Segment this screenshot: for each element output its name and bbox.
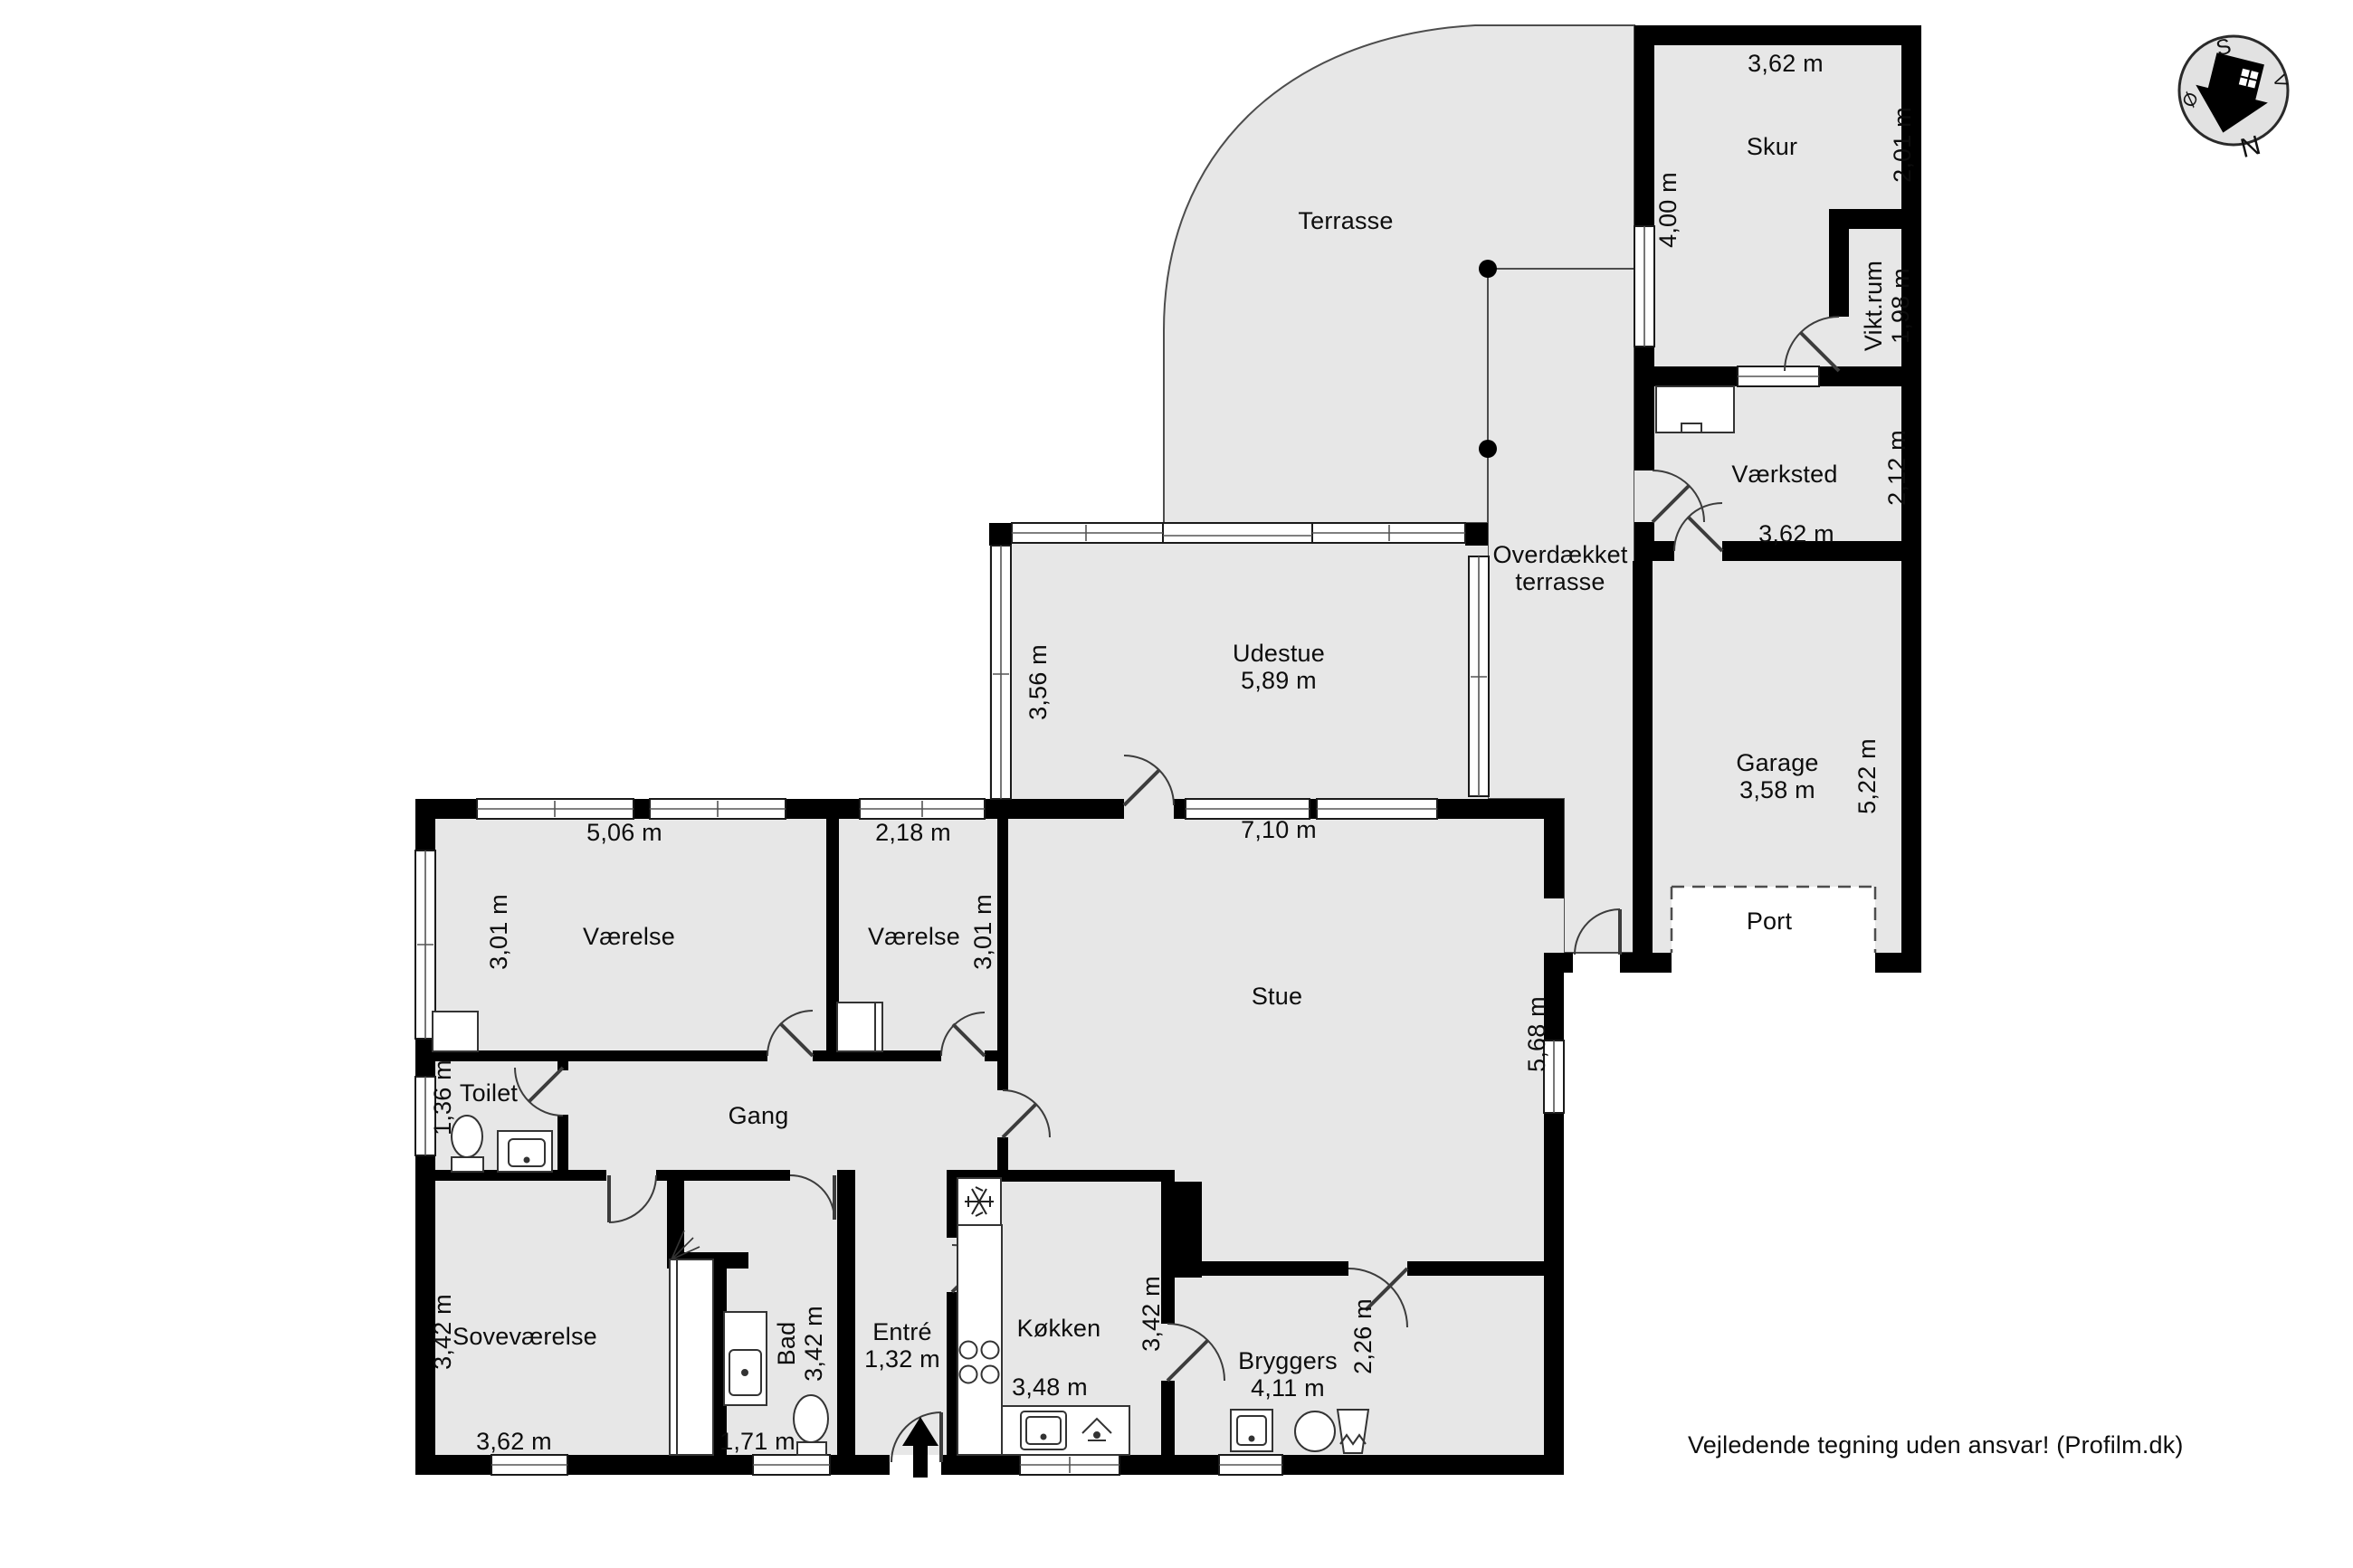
label-viktrum: Vikt.rum 1,98 m xyxy=(1860,261,1914,351)
dim-toilet: 1,36 m xyxy=(429,1060,456,1136)
dim-skur-depth: 2,01 m xyxy=(1889,107,1916,183)
dim-vaerksted-depth: 2,12 m xyxy=(1883,430,1910,506)
dim-vaerelse1-width: 5,06 m xyxy=(586,819,662,846)
dim-bryggers-depth: 2,26 m xyxy=(1349,1298,1377,1374)
bath-toilet xyxy=(794,1395,828,1442)
disclaimer-text: Vejledende tegning uden ansvar! (Profilm… xyxy=(1688,1431,2184,1459)
dim-udestue-depth: 3,56 m xyxy=(1024,644,1052,720)
dim-vaerelse1-depth: 3,01 m xyxy=(485,894,512,970)
dim-skur-wall: 4,00 m xyxy=(1654,172,1681,248)
terrace-post xyxy=(1479,440,1497,458)
stove-burner xyxy=(960,1366,977,1383)
label-koekken: Køkken xyxy=(1017,1315,1101,1342)
dim-vaerksted-width: 3,62 m xyxy=(1758,520,1834,547)
dim-stue-depth: 5,68 m xyxy=(1523,996,1550,1072)
dim-stue-width: 7,10 m xyxy=(1241,816,1317,843)
dim-koekken-width: 3,48 m xyxy=(1012,1373,1088,1401)
kitchen-counter-left xyxy=(957,1225,1002,1455)
laundry-basket xyxy=(1338,1410,1368,1453)
label-terrasse: Terrasse xyxy=(1298,207,1393,234)
label-garage: Garage 3,58 m xyxy=(1736,749,1818,803)
stove-burner xyxy=(960,1342,977,1359)
dim-garage-depth: 5,22 m xyxy=(1853,738,1881,814)
dim-sovevaerelse-depth: 3,42 m xyxy=(429,1294,456,1370)
washing-machine xyxy=(1295,1411,1335,1451)
dim-skur-width: 3,62 m xyxy=(1748,50,1824,77)
stove-burner xyxy=(982,1366,999,1383)
label-vaerelse2: Værelse xyxy=(868,923,960,950)
label-vaerelse1: Værelse xyxy=(583,923,675,950)
label-sovevaerelse: Soveværelse xyxy=(452,1323,597,1350)
label-skur: Skur xyxy=(1747,133,1797,160)
label-bryggers: Bryggers 4,11 m xyxy=(1238,1347,1338,1402)
label-port: Port xyxy=(1747,908,1792,935)
label-toilet: Toilet xyxy=(460,1079,518,1107)
dim-bad-width: 1,71 m xyxy=(719,1428,795,1455)
floorplan-drawing: S V N Ø xyxy=(0,0,2353,1568)
dim-koekken-depth: 3,42 m xyxy=(1138,1276,1165,1352)
compass: S V N Ø xyxy=(2179,33,2291,164)
label-gang: Gang xyxy=(729,1102,789,1129)
dim-sovevaerelse-width: 3,62 m xyxy=(476,1428,552,1455)
label-udestue: Udestue 5,89 m xyxy=(1233,640,1325,694)
label-vaerksted: Værksted xyxy=(1731,461,1837,488)
floorplan-page: S V N Ø Terrasse 3,62 m Skur 2,01 m 4,00… xyxy=(0,0,2353,1568)
terrace-post xyxy=(1479,260,1497,278)
dim-vaerelse2-depth: 3,01 m xyxy=(969,894,996,970)
bedroom1-cabinet xyxy=(433,1012,478,1051)
stove-burner xyxy=(982,1342,999,1359)
label-entre: Entré 1,32 m xyxy=(864,1318,940,1373)
label-stue: Stue xyxy=(1252,983,1302,1010)
dim-vaerelse2-width: 2,18 m xyxy=(875,819,951,846)
label-bad: Bad 3,42 m xyxy=(773,1306,827,1382)
label-overdaekket-terrasse: Overdækket terrasse xyxy=(1492,541,1627,595)
